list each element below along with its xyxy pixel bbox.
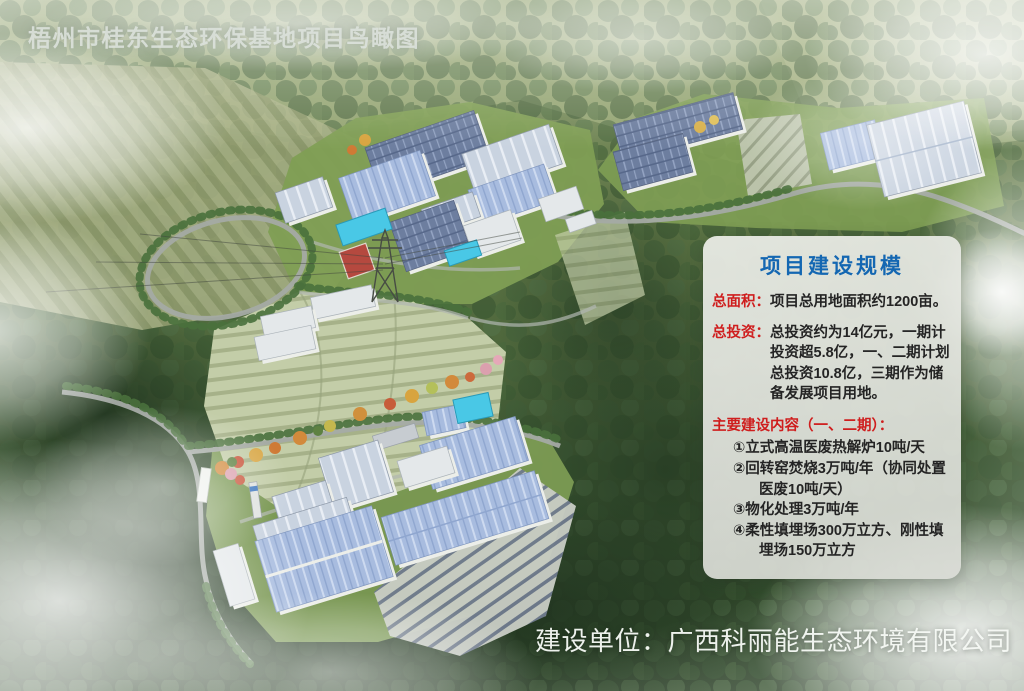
main-construction-label: 主要建设内容（一、二期）： <box>712 416 952 437</box>
construction-item-3: ③物化处理3万吨/年 <box>712 500 952 521</box>
total-area-row: 总面积： 项目总用地面积约1200亩。 <box>712 292 952 313</box>
birdseye-rendering: 梧州市桂东生态环保基地项目鸟瞰图 项目建设规模 总面积： 项目总用地面积约120… <box>0 0 1024 691</box>
total-investment-value: 总投资约为14亿元，一期计投资超5.8亿，一、二期计划总投资10.8亿，三期作为… <box>770 323 952 405</box>
total-area-label: 总面积： <box>712 292 770 313</box>
construction-item-4: ④柔性填埋场300万立方、刚性填埋场150万立方 <box>712 521 952 562</box>
construction-item-2: ②回转窑焚烧3万吨/年（协同处置医废10吨/天） <box>712 459 952 500</box>
construction-items: ①立式高温医废热解炉10吨/天 ②回转窑焚烧3万吨/年（协同处置医废10吨/天）… <box>712 438 952 561</box>
project-scale-panel: 项目建设规模 总面积： 项目总用地面积约1200亩。 总投资： 总投资约为14亿… <box>703 236 961 579</box>
total-investment-row: 总投资： 总投资约为14亿元，一期计投资超5.8亿，一、二期计划总投资10.8亿… <box>712 323 952 405</box>
total-area-value: 项目总用地面积约1200亩。 <box>770 292 947 313</box>
page-title: 梧州市桂东生态环保基地项目鸟瞰图 <box>28 19 420 53</box>
total-investment-label: 总投资： <box>712 323 770 405</box>
credit-line: 建设单位：广西科丽能生态环境有限公司 <box>535 621 1012 658</box>
panel-title: 项目建设规模 <box>712 250 952 280</box>
construction-item-1: ①立式高温医废热解炉10吨/天 <box>712 438 952 459</box>
